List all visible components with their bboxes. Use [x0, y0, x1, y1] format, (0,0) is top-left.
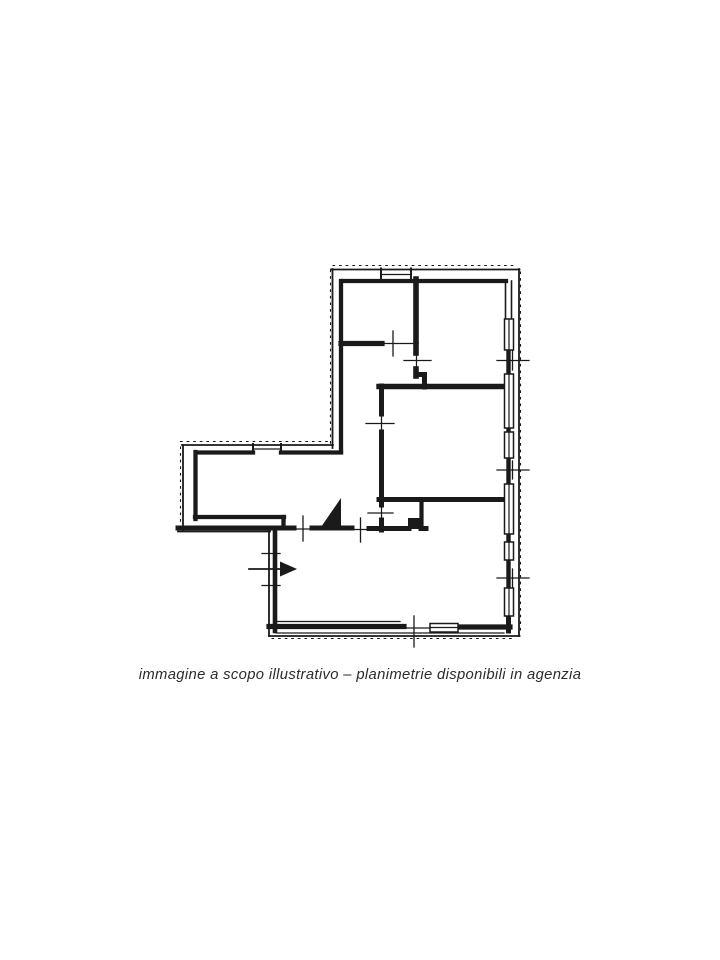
floor-plan-drawing — [0, 0, 720, 960]
page: { "page": { "background": "#ffffff" }, "… — [0, 0, 720, 960]
plan-marks — [262, 331, 529, 647]
caption: immagine a scopo illustrativo – planimet… — [0, 667, 720, 683]
plan-walls — [178, 266, 521, 639]
